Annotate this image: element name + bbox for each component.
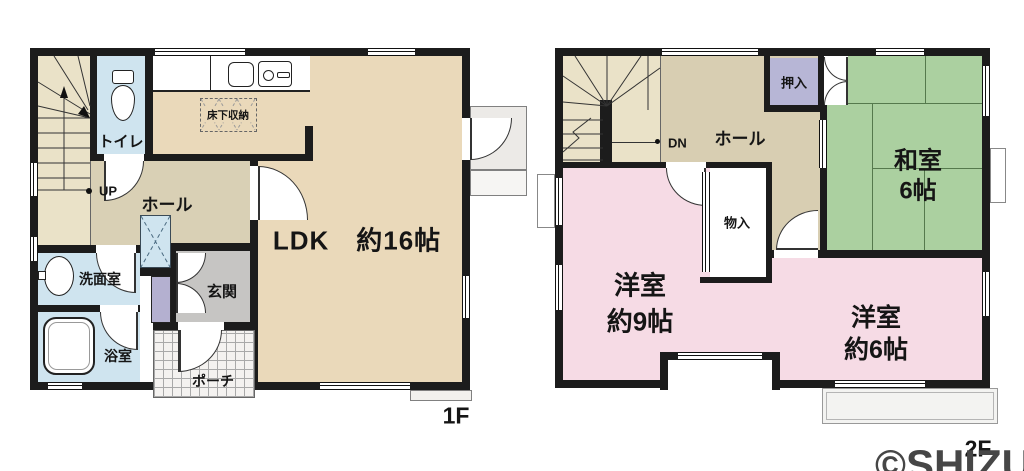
window bbox=[876, 48, 924, 56]
wall bbox=[660, 352, 668, 390]
window bbox=[320, 382, 410, 390]
exterior-cutout bbox=[666, 358, 774, 390]
wall bbox=[153, 154, 313, 161]
toilet-label: トイレ bbox=[98, 131, 143, 152]
window bbox=[982, 66, 990, 116]
wall bbox=[700, 277, 772, 283]
door-opening bbox=[178, 322, 224, 330]
window-bay bbox=[990, 148, 1006, 203]
wall bbox=[766, 162, 772, 283]
wall bbox=[171, 243, 250, 251]
door-opening bbox=[104, 154, 144, 161]
bathtub-icon bbox=[43, 317, 95, 375]
western-room9-size-label: 約9帖 bbox=[607, 302, 673, 339]
kitchen-sink-icon bbox=[228, 62, 254, 87]
monoire-label: 物入 bbox=[724, 213, 750, 232]
door-opening bbox=[100, 305, 138, 312]
japanese-room-size-label: 6帖 bbox=[899, 171, 936, 206]
wall bbox=[90, 56, 97, 161]
stair-start-dot bbox=[86, 188, 92, 194]
window bbox=[555, 178, 563, 225]
window bbox=[30, 237, 38, 261]
back-door-step bbox=[470, 170, 527, 196]
window bbox=[662, 48, 758, 56]
kitchen-faucet-icon bbox=[258, 61, 292, 87]
porch-label: ポーチ bbox=[192, 371, 234, 391]
entrance-label: 玄関 bbox=[207, 281, 237, 302]
floor1-label: 1F bbox=[443, 403, 470, 430]
tatami-line bbox=[872, 103, 873, 250]
window bbox=[155, 48, 245, 56]
stair-path-line bbox=[612, 142, 658, 143]
counter-divider bbox=[210, 56, 211, 90]
stairs-hall-divider bbox=[660, 56, 661, 168]
western-room6-size-label: 約6帖 bbox=[844, 330, 908, 366]
washroom-label: 洗面室 bbox=[79, 269, 121, 289]
window-bay bbox=[537, 174, 555, 228]
window bbox=[462, 276, 470, 318]
staircase-treads bbox=[563, 56, 660, 168]
toilet-tank-icon bbox=[112, 70, 134, 84]
balcony-inner-line bbox=[826, 392, 994, 420]
sliding-door bbox=[819, 120, 827, 168]
stairs-up-label: UP bbox=[99, 184, 117, 199]
wall bbox=[772, 352, 780, 390]
wall bbox=[305, 126, 313, 154]
oshiire-label: 押入 bbox=[781, 73, 807, 92]
hall-label: ホール bbox=[715, 125, 766, 150]
wall bbox=[764, 105, 822, 112]
tatami-line bbox=[848, 103, 982, 104]
door-opening bbox=[462, 118, 470, 160]
sliding-door bbox=[702, 172, 710, 272]
western-room6-label: 洋室 bbox=[851, 298, 901, 334]
wall bbox=[145, 56, 153, 161]
washbasin-faucet-icon bbox=[38, 271, 46, 280]
ldk-floor-upper bbox=[310, 56, 462, 161]
staircase-treads bbox=[38, 56, 90, 246]
door-opening bbox=[774, 250, 818, 258]
window bbox=[678, 352, 762, 360]
stair-start-dot bbox=[655, 139, 660, 144]
faucet-spout-icon bbox=[277, 72, 290, 78]
stairs-down-label: DN bbox=[668, 136, 687, 151]
window bbox=[555, 265, 563, 310]
terrace-step bbox=[410, 390, 472, 401]
door-opening bbox=[96, 245, 136, 253]
ldk-label: LDK 約16帖 bbox=[273, 221, 441, 258]
bathroom-label: 浴室 bbox=[104, 346, 132, 366]
wall bbox=[764, 56, 770, 112]
shoe-cabinet bbox=[151, 276, 171, 323]
laundry-pan bbox=[140, 215, 171, 268]
western-room9-label: 洋室 bbox=[614, 266, 666, 303]
tatami-line bbox=[925, 56, 926, 103]
underfloor-storage-label: 床下収納 bbox=[205, 108, 251, 123]
wall bbox=[140, 268, 171, 276]
door-opening bbox=[250, 166, 258, 220]
hall-label: ホール bbox=[142, 191, 193, 216]
window bbox=[368, 48, 415, 56]
watermark: ©SHIZUNAVI bbox=[875, 444, 1024, 471]
floor-plan-canvas: トイレ ホール 床下収納 LDK 約16帖 洗面室 浴室 玄関 ポーチ UP 1… bbox=[0, 0, 1024, 471]
window bbox=[835, 380, 925, 388]
washbasin-icon bbox=[44, 256, 74, 296]
window bbox=[30, 163, 38, 196]
window bbox=[48, 382, 82, 390]
faucet-knob-icon bbox=[263, 70, 274, 81]
window bbox=[982, 272, 990, 316]
stairs-hall-divider bbox=[90, 161, 91, 245]
bathtub-inner-line bbox=[48, 322, 90, 370]
balcony bbox=[822, 388, 998, 424]
